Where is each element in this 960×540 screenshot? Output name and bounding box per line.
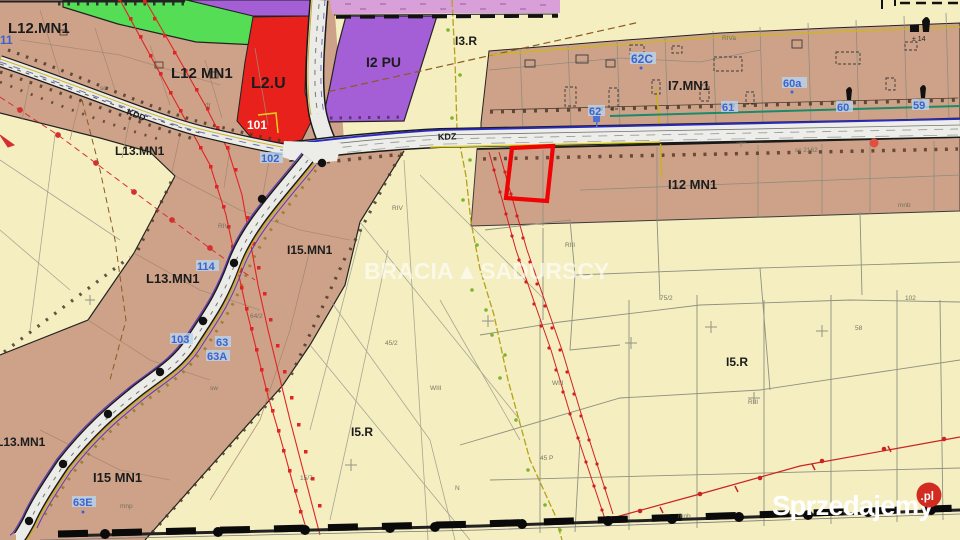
svg-text:RIV: RIV: [392, 205, 404, 212]
svg-text:RIV: RIV: [218, 223, 230, 230]
svg-text:mnb: mnb: [898, 202, 911, 209]
svg-text:I15.MN1: I15.MN1: [287, 243, 333, 257]
svg-text:63: 63: [216, 337, 228, 349]
svg-text:114: 114: [197, 261, 216, 273]
svg-text:59: 59: [913, 100, 925, 112]
svg-text:I7.MN1: I7.MN1: [668, 78, 710, 93]
svg-text:11: 11: [0, 33, 13, 47]
svg-text:I5.R: I5.R: [726, 355, 748, 369]
svg-text:dr: dr: [205, 102, 212, 109]
svg-text:RIII: RIII: [748, 399, 758, 406]
svg-text:60: 60: [837, 102, 849, 114]
svg-text:L13.MN1: L13.MN1: [146, 271, 199, 286]
svg-text:45/2: 45/2: [385, 340, 398, 347]
svg-text:63E: 63E: [73, 497, 93, 509]
svg-text:15/7: 15/7: [300, 475, 313, 482]
svg-text:45 P: 45 P: [540, 455, 553, 462]
svg-text:I3.R: I3.R: [455, 34, 477, 48]
svg-text:BRACIA▲SADURSCY: BRACIA▲SADURSCY: [364, 258, 609, 284]
svg-text:L13.MN1: L13.MN1: [0, 435, 46, 449]
svg-text:102: 102: [261, 153, 279, 165]
svg-text:KDZ: KDZ: [438, 131, 457, 142]
svg-text:102: 102: [905, 295, 916, 302]
svg-text:101: 101: [247, 118, 267, 132]
svg-text:I5.R: I5.R: [351, 425, 373, 439]
svg-text:± 14: ± 14: [912, 36, 926, 43]
svg-text:L12 MN1: L12 MN1: [171, 65, 233, 82]
svg-text:I12 MN1: I12 MN1: [668, 177, 717, 192]
svg-text:60a: 60a: [783, 78, 802, 90]
svg-text:I2 PU: I2 PU: [366, 54, 401, 70]
svg-text:RIVa: RIVa: [722, 35, 736, 42]
svg-text:I15 MN1: I15 MN1: [93, 470, 142, 485]
svg-text:L13.MN1: L13.MN1: [115, 144, 165, 158]
svg-text:.pl: .pl: [921, 491, 934, 503]
svg-text:75/2: 75/2: [660, 295, 673, 302]
svg-text:sc: sc: [100, 85, 107, 92]
svg-text:L12.MN1: L12.MN1: [8, 20, 70, 37]
svg-text:RIII: RIII: [565, 242, 575, 249]
svg-text:63A: 63A: [207, 351, 227, 363]
svg-text:103: 103: [171, 334, 189, 346]
svg-text:62C: 62C: [631, 52, 653, 66]
svg-text:64/2: 64/2: [250, 313, 263, 320]
svg-text:WIII: WIII: [430, 385, 442, 392]
svg-text:sc 2162: sc 2162: [795, 147, 818, 154]
svg-text:mnb: mnb: [678, 513, 691, 520]
svg-text:Sprzedajemy: Sprzedajemy: [772, 490, 934, 521]
svg-text:mnp: mnp: [120, 503, 133, 510]
svg-text:L2.U: L2.U: [251, 75, 286, 92]
svg-text:N: N: [455, 485, 460, 492]
svg-text:WIII: WIII: [552, 380, 564, 387]
svg-text:sw: sw: [210, 385, 218, 392]
svg-text:58: 58: [855, 325, 863, 332]
svg-text:61: 61: [722, 102, 734, 114]
